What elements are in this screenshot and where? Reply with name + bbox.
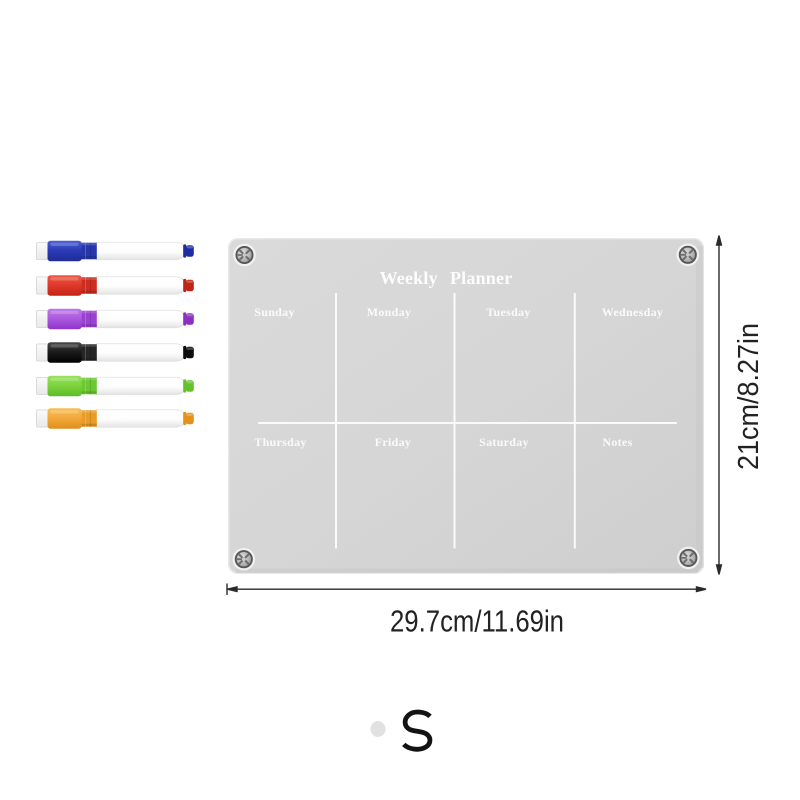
svg-text:21cm/8.27in: 21cm/8.27in xyxy=(733,323,765,470)
svg-text:Thursday: Thursday xyxy=(254,435,306,449)
svg-text:29.7cm/11.69in: 29.7cm/11.69in xyxy=(390,604,564,639)
svg-text:Monday: Monday xyxy=(367,305,411,319)
svg-text:Weekly Planner: Weekly Planner xyxy=(380,268,513,288)
svg-text:Friday: Friday xyxy=(375,435,411,449)
svg-text:Tuesday: Tuesday xyxy=(486,305,530,319)
svg-text:Notes: Notes xyxy=(602,435,632,449)
svg-text:Wednesday: Wednesday xyxy=(602,305,663,319)
svg-text:Saturday: Saturday xyxy=(479,435,529,449)
svg-text:Sunday: Sunday xyxy=(254,305,295,319)
